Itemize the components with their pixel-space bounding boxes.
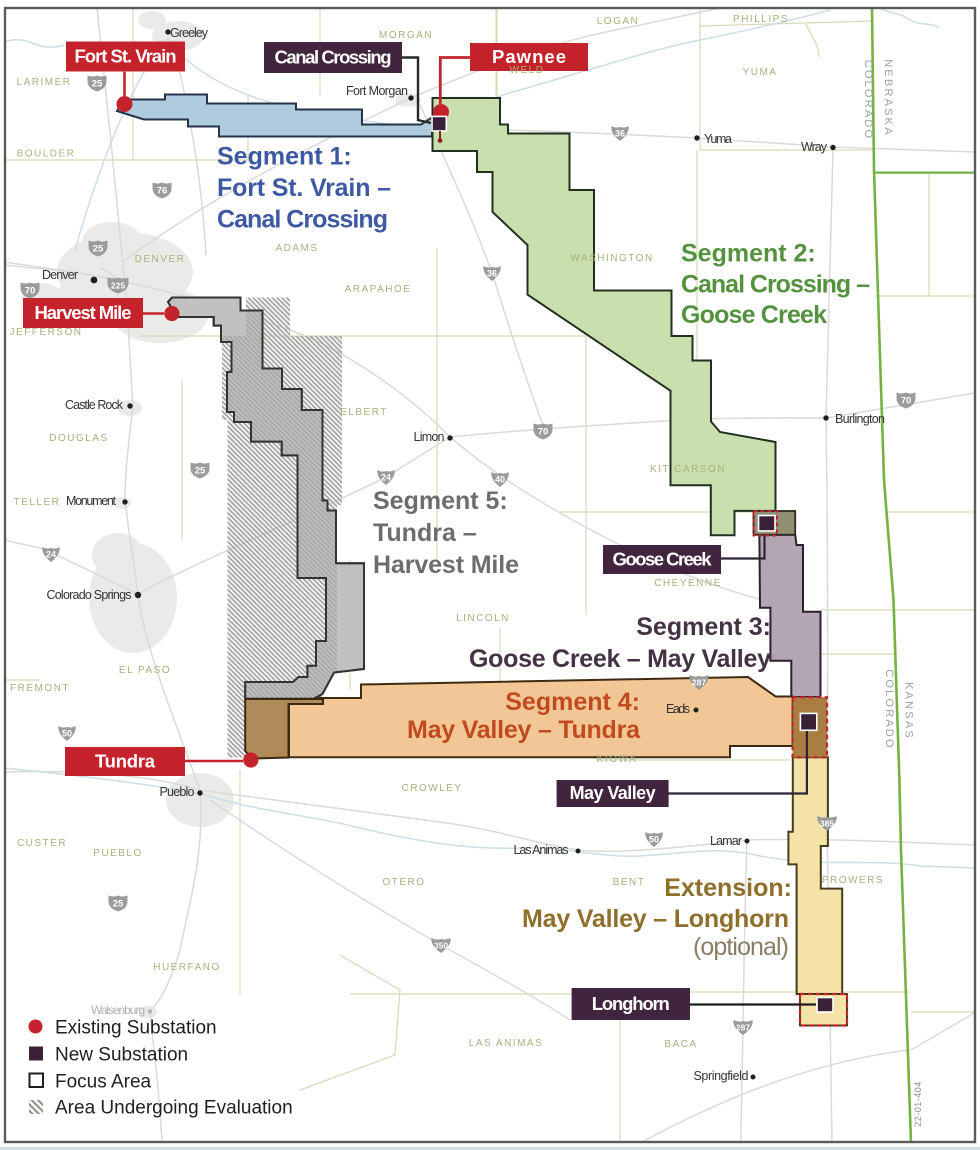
svg-text:BENT: BENT bbox=[613, 877, 646, 888]
svg-text:PUEBLO: PUEBLO bbox=[93, 848, 143, 859]
svg-text:KIT CARSON: KIT CARSON bbox=[650, 464, 726, 475]
svg-text:YUMA: YUMA bbox=[743, 67, 778, 78]
svg-text:Tundra: Tundra bbox=[95, 751, 156, 772]
svg-text:COLORADO: COLORADO bbox=[883, 669, 895, 750]
svg-text:CHEYENNE: CHEYENNE bbox=[654, 578, 722, 589]
svg-text:Walsenburg: Walsenburg bbox=[91, 1003, 145, 1017]
svg-text:WASHINGTON: WASHINGTON bbox=[570, 253, 653, 264]
svg-text:Segment 1:: Segment 1: bbox=[217, 143, 352, 171]
svg-text:Segment 3:: Segment 3: bbox=[636, 613, 771, 641]
svg-text:Pueblo: Pueblo bbox=[160, 785, 195, 799]
svg-text:Denver: Denver bbox=[42, 268, 78, 282]
svg-text:Canal Crossing: Canal Crossing bbox=[217, 206, 388, 234]
svg-text:Focus Area: Focus Area bbox=[55, 1072, 152, 1093]
svg-text:DENVER: DENVER bbox=[135, 254, 186, 265]
svg-text:Segment 4:: Segment 4: bbox=[505, 688, 640, 716]
svg-text:LINCOLN: LINCOLN bbox=[456, 613, 510, 624]
svg-text:PROWERS: PROWERS bbox=[822, 875, 884, 886]
svg-text:Goose Creek: Goose Creek bbox=[613, 549, 713, 570]
svg-text:Existing Substation: Existing Substation bbox=[55, 1018, 217, 1039]
svg-text:22-01-404: 22-01-404 bbox=[913, 1081, 923, 1127]
svg-text:350: 350 bbox=[434, 941, 448, 951]
svg-text:70: 70 bbox=[538, 427, 549, 438]
svg-text:MORGAN: MORGAN bbox=[379, 30, 433, 41]
svg-text:Eads: Eads bbox=[666, 702, 690, 716]
svg-text:FREMONT: FREMONT bbox=[10, 683, 70, 694]
svg-text:Canal Crossing –: Canal Crossing – bbox=[681, 271, 870, 299]
svg-text:25: 25 bbox=[195, 466, 206, 477]
svg-text:ADAMS: ADAMS bbox=[275, 243, 318, 254]
svg-text:May Valley: May Valley bbox=[570, 783, 656, 803]
svg-text:May Valley – Tundra: May Valley – Tundra bbox=[407, 716, 641, 744]
svg-text:287: 287 bbox=[736, 1023, 750, 1033]
svg-text:Lamar: Lamar bbox=[710, 834, 742, 848]
svg-text:Fort St. Vrain: Fort St. Vrain bbox=[75, 46, 177, 67]
svg-text:25: 25 bbox=[92, 79, 103, 90]
svg-text:KIOWA: KIOWA bbox=[597, 754, 637, 765]
svg-text:24: 24 bbox=[381, 473, 391, 483]
svg-text:OTERO: OTERO bbox=[382, 877, 425, 888]
svg-text:BOULDER: BOULDER bbox=[17, 149, 76, 160]
svg-text:225: 225 bbox=[111, 281, 125, 291]
svg-text:TELLER: TELLER bbox=[14, 497, 61, 508]
svg-text:76: 76 bbox=[157, 186, 168, 197]
svg-text:Yuma: Yuma bbox=[704, 132, 732, 146]
svg-text:Segment 2:: Segment 2: bbox=[681, 240, 816, 268]
svg-text:40: 40 bbox=[495, 475, 505, 485]
svg-text:Goose Creek: Goose Creek bbox=[681, 301, 827, 329]
svg-text:Longhorn: Longhorn bbox=[592, 993, 670, 1014]
svg-text:Canal Crossing: Canal Crossing bbox=[275, 47, 392, 68]
svg-text:LOGAN: LOGAN bbox=[597, 16, 640, 27]
svg-text:Goose Creek – May Valley: Goose Creek – May Valley bbox=[469, 645, 771, 673]
svg-text:JEFFERSON: JEFFERSON bbox=[10, 327, 83, 338]
svg-text:COLORADO: COLORADO bbox=[862, 60, 874, 141]
svg-text:Area Undergoing Evaluation: Area Undergoing Evaluation bbox=[55, 1098, 293, 1119]
svg-text:ELBERT: ELBERT bbox=[340, 407, 388, 418]
svg-text:Harvest Mile: Harvest Mile bbox=[373, 551, 519, 579]
svg-text:LARIMER: LARIMER bbox=[17, 77, 72, 88]
svg-text:385: 385 bbox=[820, 819, 834, 829]
svg-text:36: 36 bbox=[487, 269, 497, 279]
svg-text:CUSTER: CUSTER bbox=[17, 838, 67, 849]
svg-text:Limon: Limon bbox=[414, 430, 445, 444]
svg-text:Burlington: Burlington bbox=[835, 412, 885, 426]
svg-text:Monument: Monument bbox=[66, 494, 117, 508]
svg-text:70: 70 bbox=[25, 286, 36, 297]
svg-text:Extension:: Extension: bbox=[664, 874, 792, 902]
svg-text:Wray: Wray bbox=[801, 140, 828, 154]
svg-text:(optional): (optional) bbox=[693, 933, 789, 961]
svg-text:NEBRASKA: NEBRASKA bbox=[882, 59, 894, 137]
svg-text:KANSAS: KANSAS bbox=[903, 682, 915, 740]
svg-text:Colorado Springs: Colorado Springs bbox=[47, 588, 132, 602]
svg-text:36: 36 bbox=[615, 129, 625, 139]
svg-text:May Valley – Longhorn: May Valley – Longhorn bbox=[522, 905, 789, 933]
svg-text:New Substation: New Substation bbox=[55, 1045, 188, 1066]
svg-text:CROWLEY: CROWLEY bbox=[401, 783, 462, 794]
svg-text:HUERFANO: HUERFANO bbox=[153, 962, 221, 973]
svg-text:DOUGLAS: DOUGLAS bbox=[49, 433, 108, 444]
svg-text:Fort Morgan: Fort Morgan bbox=[346, 84, 408, 98]
svg-text:287: 287 bbox=[692, 678, 706, 688]
svg-text:BACA: BACA bbox=[664, 1039, 697, 1050]
svg-text:Las Animas: Las Animas bbox=[514, 843, 569, 857]
svg-text:Fort St. Vrain –: Fort St. Vrain – bbox=[217, 174, 391, 202]
svg-text:Springfield: Springfield bbox=[694, 1069, 749, 1083]
svg-text:Greeley: Greeley bbox=[170, 26, 209, 40]
svg-text:Harvest Mile: Harvest Mile bbox=[35, 302, 132, 323]
svg-text:24: 24 bbox=[46, 550, 56, 560]
svg-text:WELD: WELD bbox=[510, 65, 545, 76]
svg-text:25: 25 bbox=[113, 899, 124, 910]
svg-text:PHILLIPS: PHILLIPS bbox=[733, 14, 789, 25]
svg-text:ARAPAHOE: ARAPAHOE bbox=[345, 284, 412, 295]
svg-text:50: 50 bbox=[649, 835, 659, 845]
svg-text:LAS ANIMAS: LAS ANIMAS bbox=[469, 1038, 543, 1049]
svg-text:Segment 5:: Segment 5: bbox=[373, 487, 508, 515]
svg-text:Castle Rock: Castle Rock bbox=[65, 398, 124, 412]
svg-text:EL PASO: EL PASO bbox=[119, 665, 171, 676]
svg-text:Pawnee: Pawnee bbox=[492, 46, 566, 67]
svg-text:50: 50 bbox=[62, 729, 72, 739]
svg-text:70: 70 bbox=[901, 396, 912, 407]
svg-text:Tundra –: Tundra – bbox=[373, 519, 477, 547]
svg-text:25: 25 bbox=[93, 244, 104, 255]
